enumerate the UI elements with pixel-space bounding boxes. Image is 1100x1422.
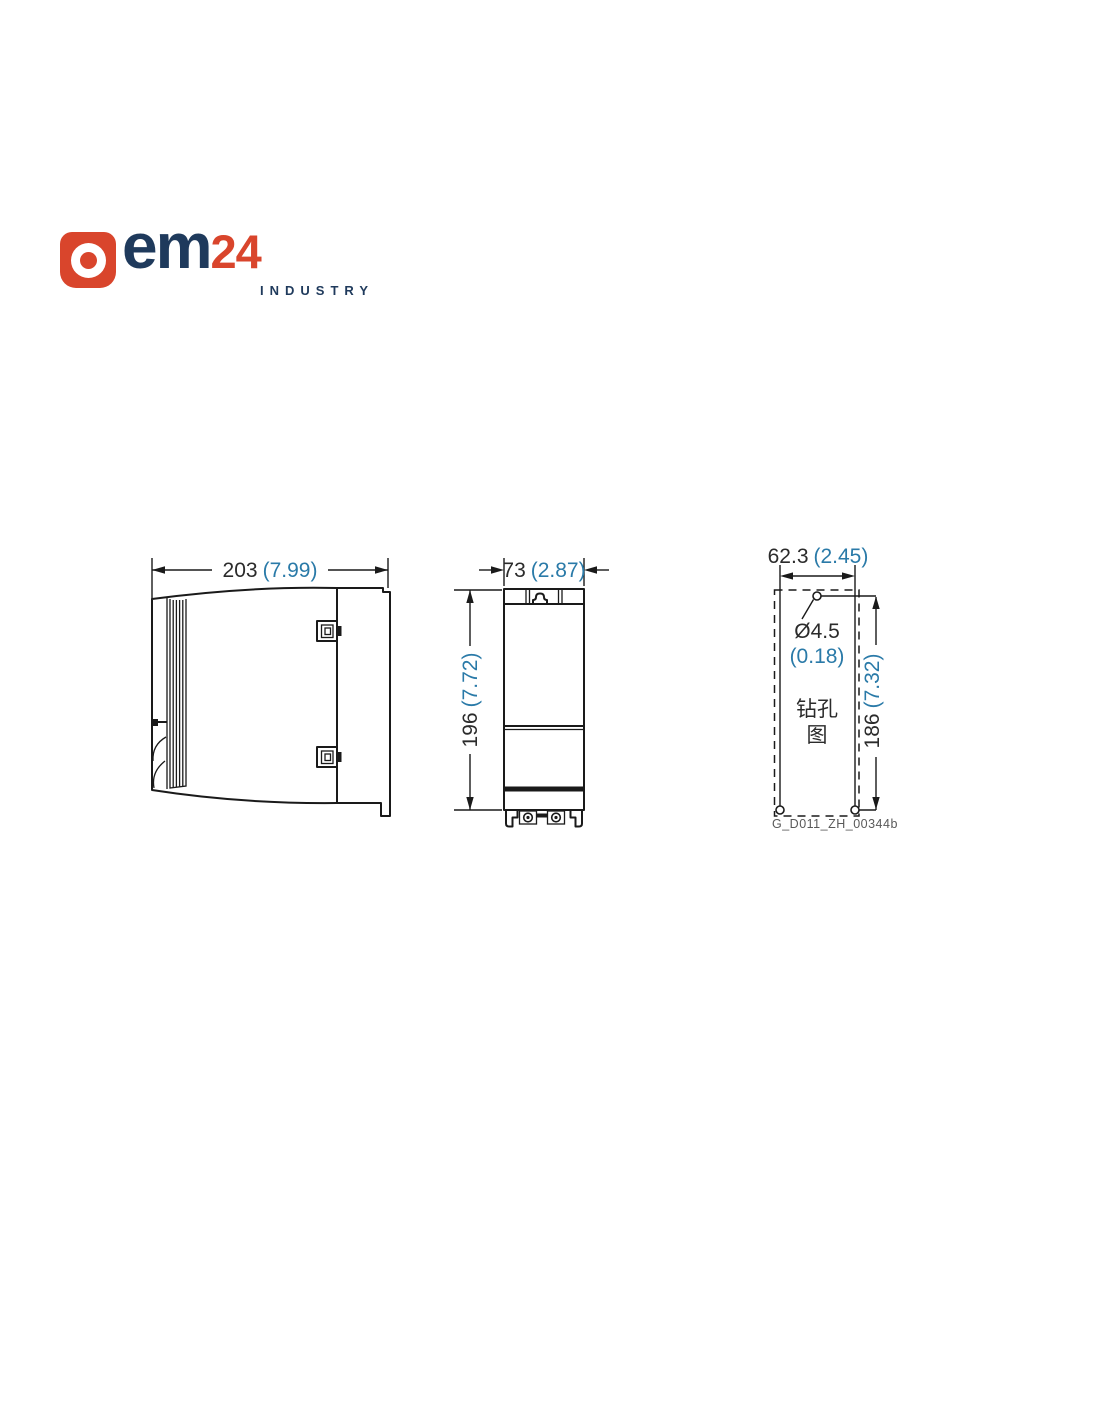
drill-spacing-dimension: 62.3(2.45) <box>768 545 869 580</box>
arrow-left-icon <box>584 566 597 574</box>
clip-tab <box>337 626 342 636</box>
side-view-outline <box>152 588 390 816</box>
hole-diameter-inch-label: (0.18) <box>790 645 845 668</box>
side-width-in: (7.99) <box>263 559 318 582</box>
front-height-in: (7.72) <box>459 653 482 708</box>
side-width-mm: 203 <box>223 559 258 582</box>
side-release-lever-curve-1 <box>153 737 166 761</box>
side-width-label: 203(7.99) <box>223 559 318 582</box>
side-release-lever-curve-2 <box>153 761 165 788</box>
vent-panel <box>170 599 186 788</box>
screw-right-dot <box>554 816 557 819</box>
mounting-keyhole <box>533 594 547 605</box>
hole-diameter-label: Ø4.5 <box>794 620 840 643</box>
foot-hook-left <box>506 810 518 827</box>
clip-tab <box>337 752 342 762</box>
drill-height-label: 186(7.32) <box>861 654 884 749</box>
front-width-dimension: 73(2.87) <box>479 558 609 586</box>
page: { "logo": { "icon": "ring-mark-icon", "t… <box>0 0 1100 1422</box>
front-lower-band <box>504 787 584 792</box>
din-clip-upper <box>317 621 342 641</box>
drill-pattern-view: 62.3(2.45) Ø4.5 (0.18) 钻孔 图 186(7.32) G_… <box>768 545 898 831</box>
drill-caption-line2: 图 <box>807 724 828 747</box>
din-clip-lower <box>317 747 342 767</box>
arrow-up-icon <box>872 597 879 610</box>
clip-inner <box>325 754 331 761</box>
bottom-feet <box>506 810 582 827</box>
arrow-down-icon <box>466 797 473 810</box>
hole-leader-line <box>802 600 814 620</box>
arrow-right-icon <box>842 572 855 579</box>
drill-spacing-in: (2.45) <box>814 545 869 568</box>
clip-mid <box>322 751 334 764</box>
front-height-dimension: 196(7.72) <box>454 590 502 810</box>
drill-caption-line1: 钻孔 <box>796 698 838 721</box>
doc-code-label: G_D011_ZH_00344b <box>772 817 898 831</box>
arrow-right-icon <box>375 566 388 574</box>
arrow-left-icon <box>780 572 793 579</box>
foot-hook-right <box>571 810 583 827</box>
drill-hole-bottom-left <box>776 806 784 814</box>
front-width-label: 73(2.87) <box>502 559 585 582</box>
arrow-up-icon <box>466 590 473 603</box>
drill-spacing-mm: 62.3 <box>768 545 809 568</box>
front-view: 73(2.87) 196(7.72) <box>454 558 609 827</box>
dimension-drawing: 203(7.99) <box>0 0 1100 1422</box>
drill-height-mm: 186 <box>861 713 884 748</box>
drill-hole-bottom-right <box>851 806 859 814</box>
front-width-mm: 73 <box>502 559 525 582</box>
arrow-down-icon <box>872 797 879 810</box>
drill-spacing-label: 62.3(2.45) <box>768 545 869 568</box>
front-height-mm: 196 <box>459 712 482 747</box>
screw-left-dot <box>526 816 529 819</box>
side-width-dimension: 203(7.99) <box>152 558 388 599</box>
clip-inner <box>325 628 331 635</box>
feet-connector-bar <box>537 814 548 818</box>
side-strip-latch-dot <box>151 719 158 726</box>
front-width-in: (2.87) <box>531 559 586 582</box>
vent-panel-outline <box>170 599 186 788</box>
drill-hole-top <box>813 592 821 600</box>
drill-height-in: (7.32) <box>861 654 884 709</box>
front-height-label: 196(7.72) <box>459 653 482 748</box>
front-body-outline <box>504 589 584 810</box>
side-view: 203(7.99) <box>151 558 390 816</box>
clip-mid <box>322 625 334 638</box>
arrow-left-icon <box>152 566 165 574</box>
